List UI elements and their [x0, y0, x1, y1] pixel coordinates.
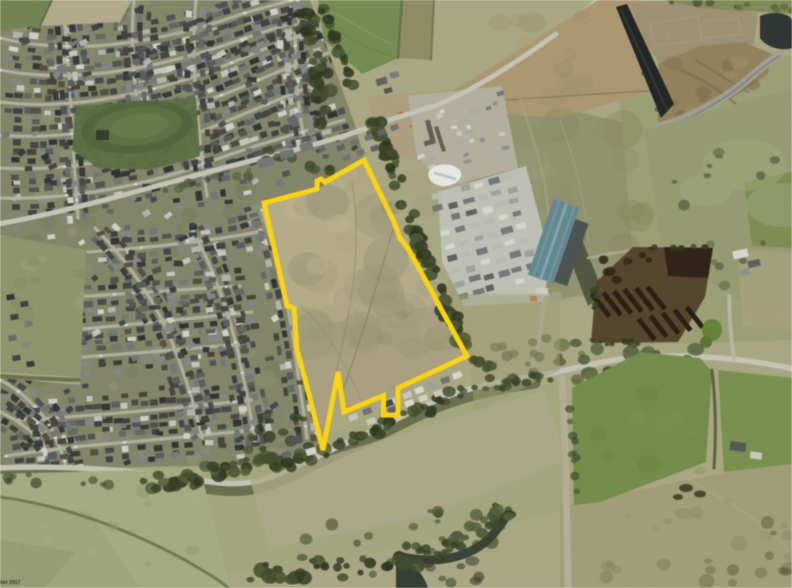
svg-text:ber 2017: ber 2017	[0, 580, 21, 586]
